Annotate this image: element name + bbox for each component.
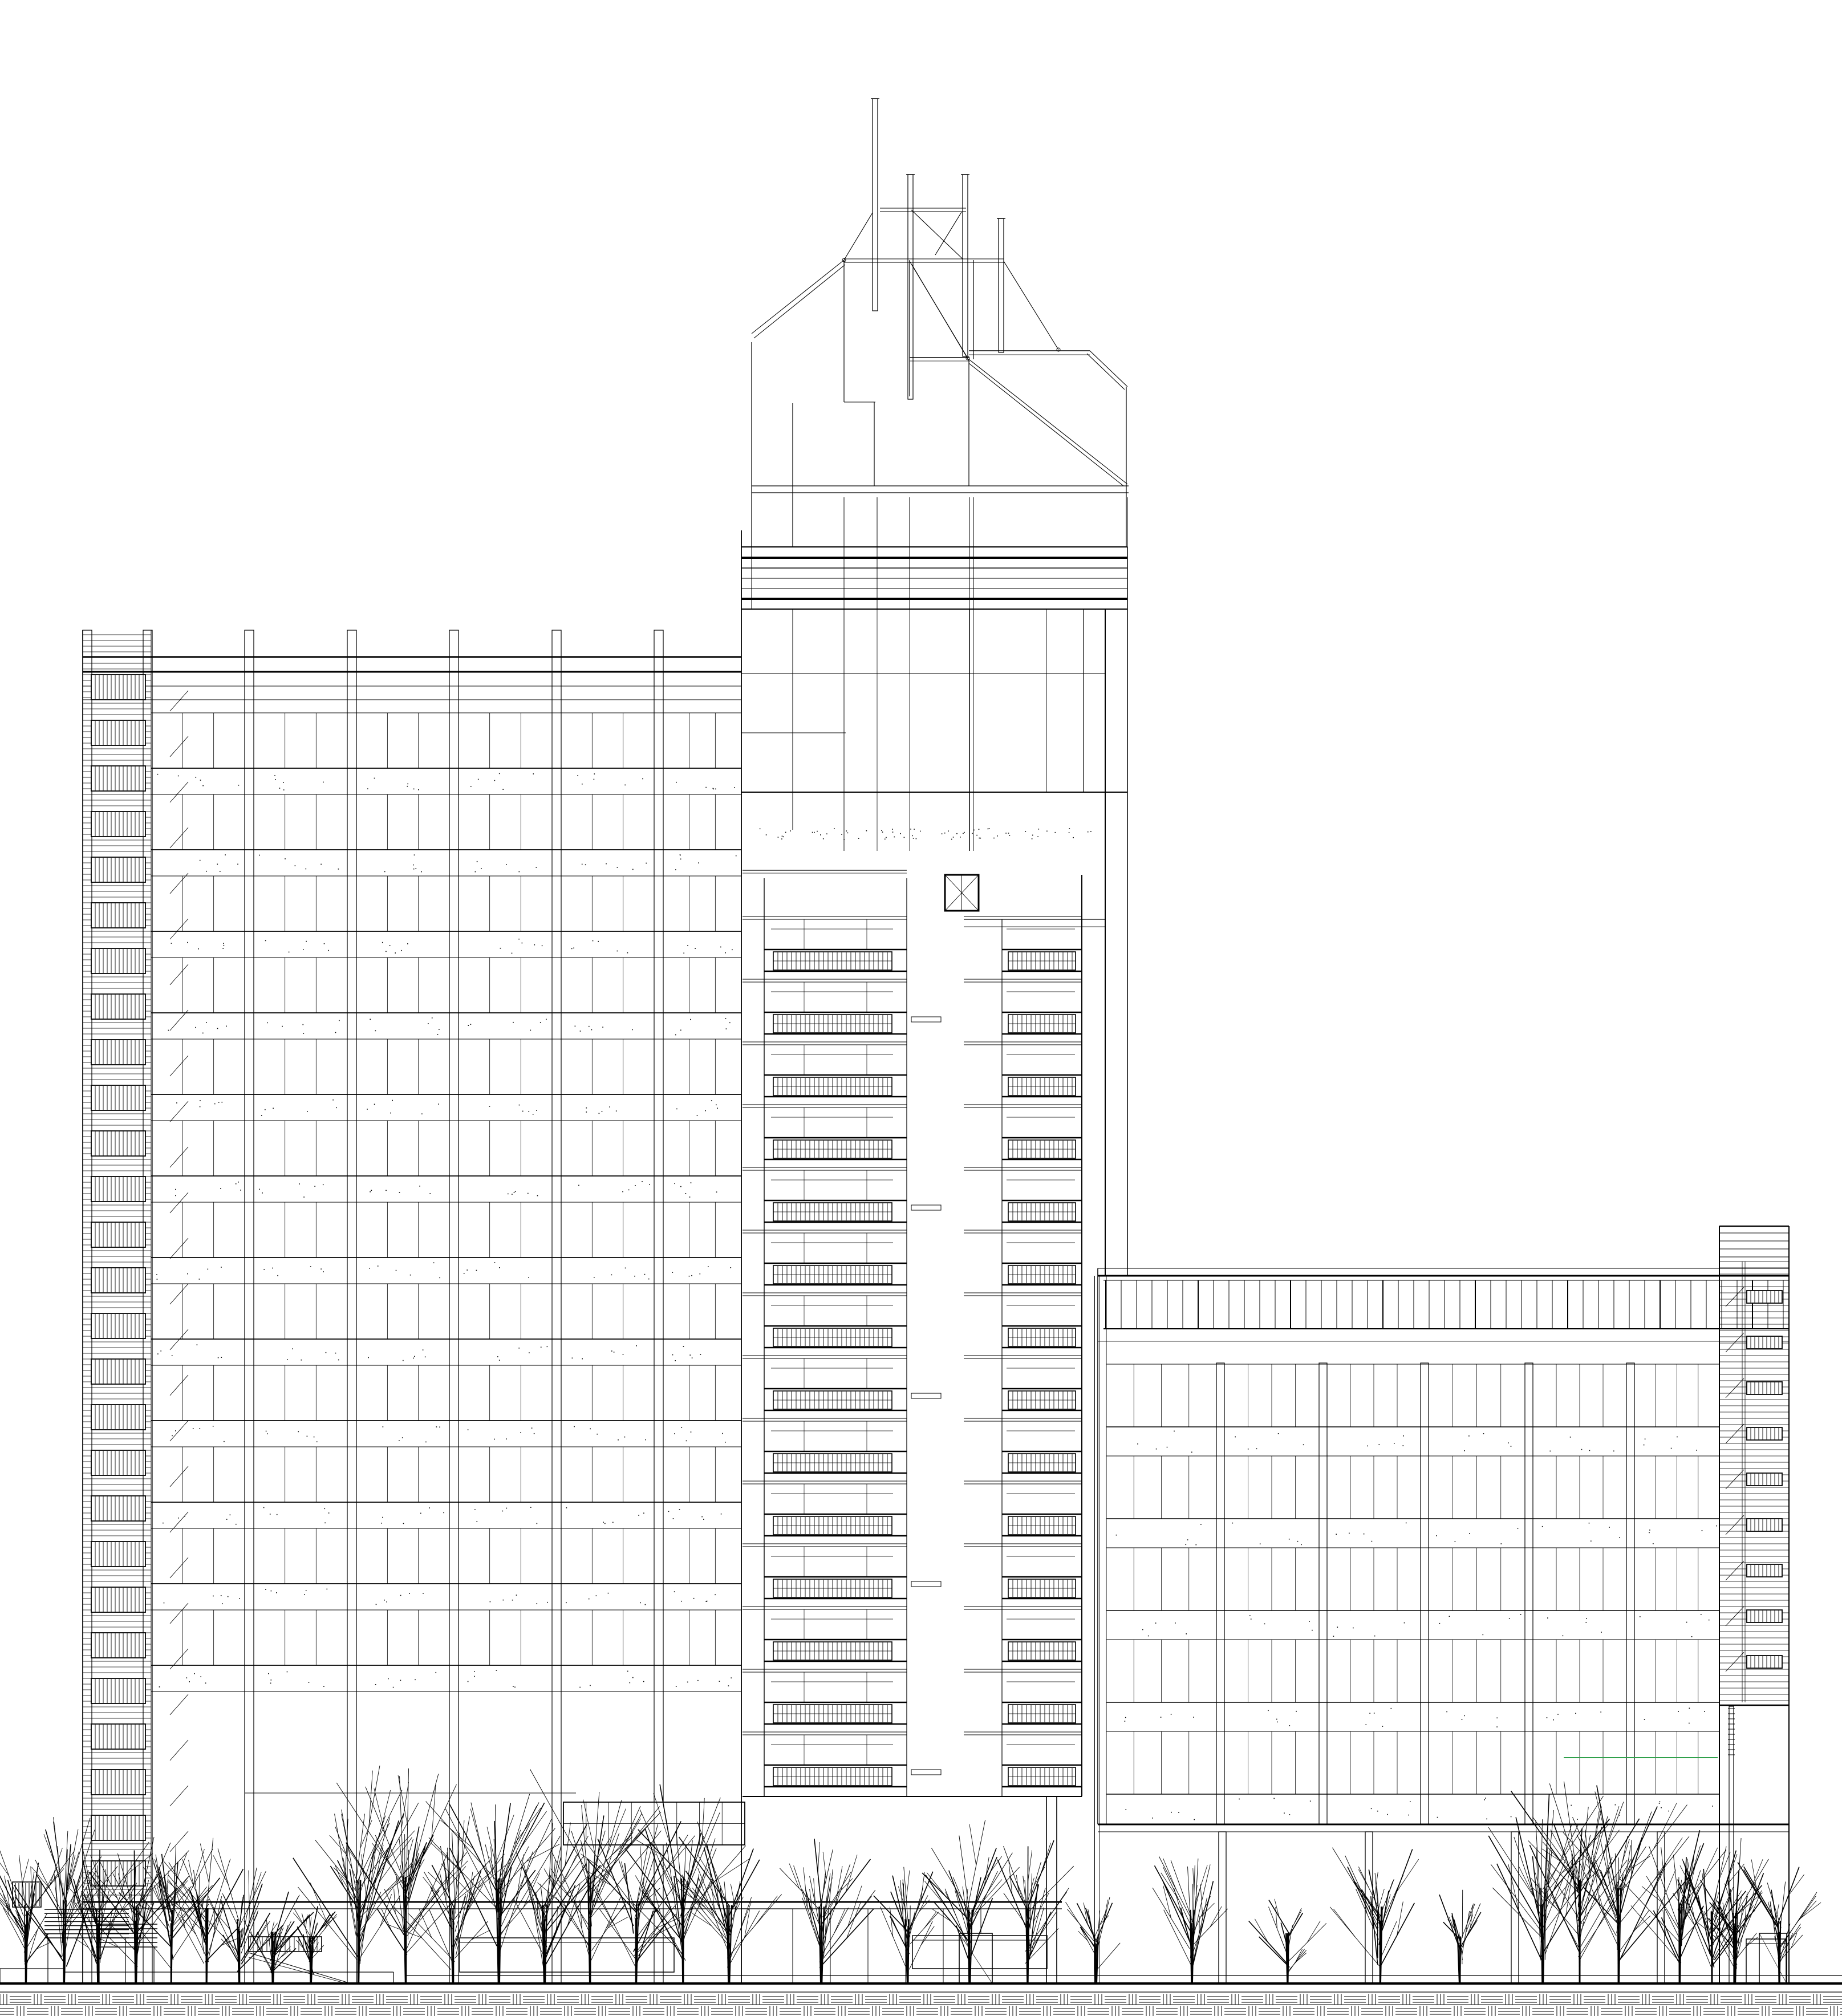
- building-elevation-drawing: [0, 0, 1842, 2016]
- elevation-sheet: [0, 0, 1842, 2016]
- paper-background: [0, 0, 1842, 2016]
